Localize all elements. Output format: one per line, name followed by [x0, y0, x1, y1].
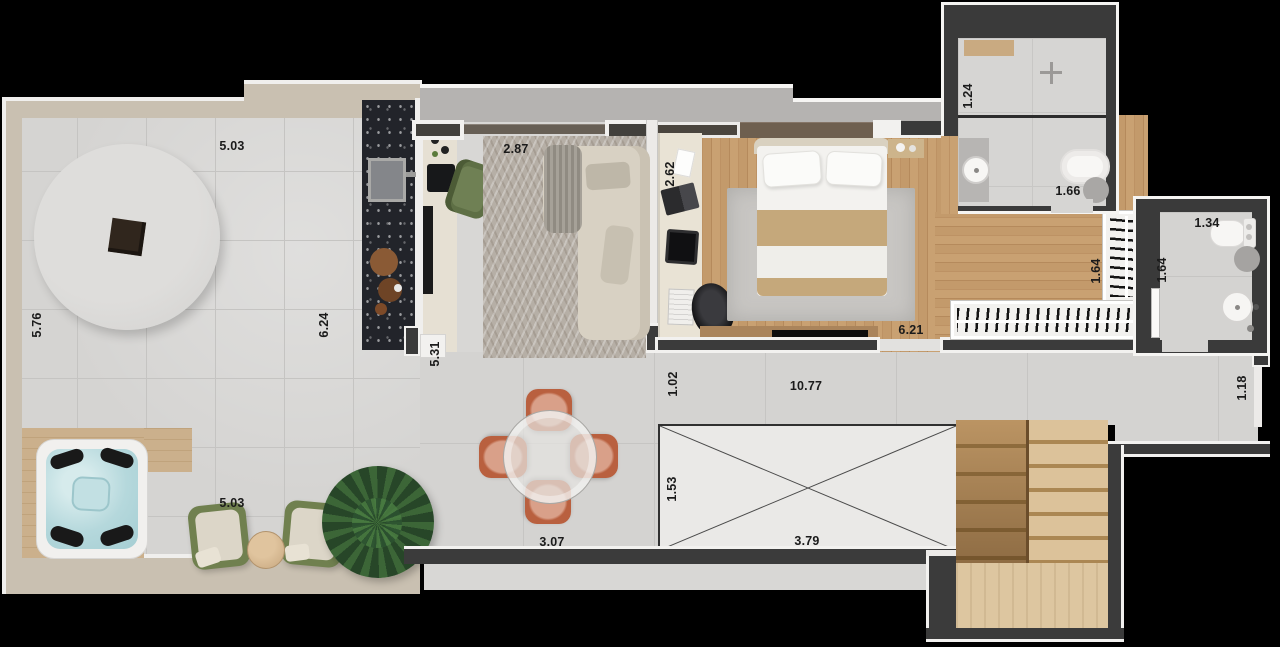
dimension-label: 6.24: [317, 312, 331, 337]
dimension-label: 1.64: [1155, 257, 1169, 282]
dimension-label: 1.18: [1235, 375, 1249, 400]
dimension-label: 5.03: [219, 139, 244, 153]
apartment-floor-plan: 5.032.872.621.241.661.345.766.245.311.64…: [0, 0, 1280, 647]
dimension-label: 1.53: [665, 476, 679, 501]
dimension-label: 2.62: [663, 161, 677, 186]
dimension-labels-layer: 5.032.872.621.241.661.345.766.245.311.64…: [0, 0, 1280, 647]
dimension-label: 1.24: [961, 83, 975, 108]
dimension-label: 1.66: [1055, 184, 1080, 198]
dimension-label: 5.31: [428, 341, 442, 366]
dimension-label: 1.02: [666, 371, 680, 396]
dimension-label: 1.34: [1194, 216, 1219, 230]
dimension-label: 1.64: [1089, 258, 1103, 283]
dimension-label: 5.03: [219, 496, 244, 510]
dimension-label: 3.07: [539, 535, 564, 549]
dimension-label: 5.76: [30, 312, 44, 337]
dimension-label: 10.77: [790, 379, 822, 393]
dimension-label: 2.87: [503, 142, 528, 156]
dimension-label: 3.79: [794, 534, 819, 548]
dimension-label: 6.21: [898, 323, 923, 337]
